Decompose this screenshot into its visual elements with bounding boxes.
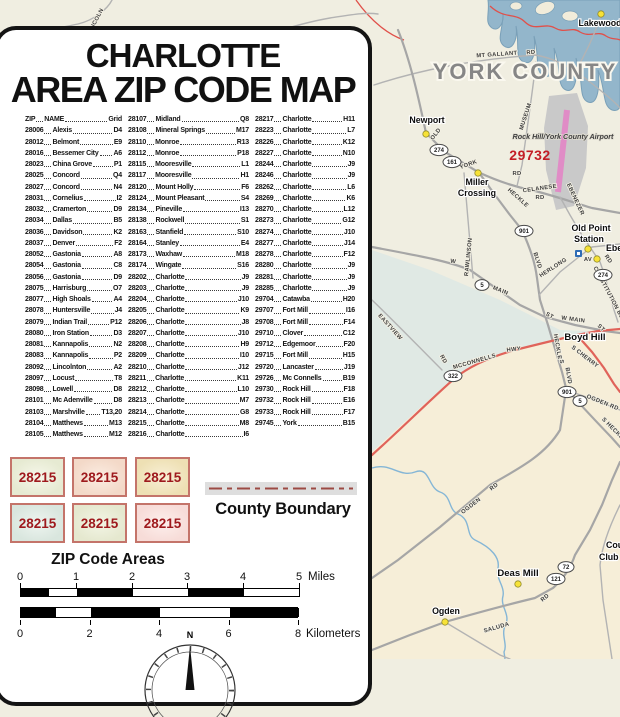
county-boundary-key-label: County Boundary <box>198 500 368 519</box>
zip-code-red-label: 29732 <box>509 147 550 163</box>
zip-row: 28211CharlotteK11 <box>128 373 249 384</box>
lake-island <box>510 2 522 10</box>
route-shield: 901 <box>515 225 533 236</box>
zip-row: 28214CharlotteG8 <box>128 407 249 418</box>
zip-row: 28206CharlotteJ8 <box>128 317 249 328</box>
scale-tick-label: 2 <box>78 628 102 640</box>
zip-row: 28207CharlotteJ10 <box>128 328 249 339</box>
scale-tick-label: 0 <box>8 628 32 640</box>
swatch-label: 28215 <box>81 470 119 485</box>
zip-row: 28115MooresvilleL1 <box>128 159 249 170</box>
zip-row: 28054GastoniaC8 <box>25 260 122 271</box>
zip-area-swatch: 28215 <box>135 457 190 497</box>
zip-row: 28052GastoniaA8 <box>25 249 122 260</box>
zip-row: 28016Bessemer CityA6 <box>25 148 122 159</box>
zip-row: 28174WingateS16 <box>128 260 249 271</box>
road-label: RD <box>512 171 521 177</box>
zip-row: 28077High ShoalsA4 <box>25 294 122 305</box>
svg-text:274: 274 <box>598 273 609 279</box>
zip-row: 28097LocustT8 <box>25 373 122 384</box>
zip-row: 28285CharlotteJ9 <box>255 283 355 294</box>
zip-row: 28108Mineral SpringsM17 <box>128 125 249 136</box>
miles-scale-bar <box>20 588 300 597</box>
zip-row: 28104MatthewsM13 <box>25 418 122 429</box>
scale-tick-label: 0 <box>8 571 32 583</box>
swatch-label: 28215 <box>19 516 57 531</box>
zip-row: 28262CharlotteL6 <box>255 182 355 193</box>
lake-island <box>562 11 578 21</box>
zip-row: 28101Mc AdenvilleD8 <box>25 395 122 406</box>
zip-row: 28078HuntersvilleJ4 <box>25 305 122 316</box>
place-label: Station <box>574 234 604 244</box>
zip-row: 29707Fort MillI16 <box>255 305 355 316</box>
zip-row: 28212CharlotteL10 <box>128 384 249 395</box>
zip-row: 29726Mc ConnellsB19 <box>255 373 355 384</box>
place-label: Club <box>599 552 619 562</box>
route-shield: 5 <box>573 396 587 407</box>
place-label: Deas Mill <box>497 568 538 579</box>
zip-row: 28215CharlotteM8 <box>128 418 249 429</box>
zip-row: 28110MonroeR13 <box>128 137 249 148</box>
map-title-line1: CHARLOTTE <box>0 39 368 72</box>
scale-tick-label: 4 <box>231 571 255 583</box>
zip-row: 28034DallasB5 <box>25 215 122 226</box>
zip-row: 28203CharlotteJ9 <box>128 283 249 294</box>
zip-row: 28270CharlotteL12 <box>255 204 355 215</box>
road-label: AV <box>584 257 592 263</box>
scale-tick-label: 3 <box>175 571 199 583</box>
zip-row: 28120Mount HollyF6 <box>128 182 249 193</box>
zip-row: 28103MarshvilleT13,20 <box>25 407 122 418</box>
route-shield: 5 <box>475 280 489 291</box>
zip-row: 28202CharlotteJ9 <box>128 272 249 283</box>
compass-needle <box>186 646 195 690</box>
zip-row: 28163StanfieldS10 <box>128 227 249 238</box>
zip-row: 28107MidlandQ8 <box>128 114 249 125</box>
zip-row: ZIPNAMEGrid <box>25 114 122 125</box>
zip-row: 28098LowellD8 <box>25 384 122 395</box>
zip-row: 28209CharlotteI10 <box>128 350 249 361</box>
map-title-line2: AREA ZIP CODE MAP <box>0 72 368 108</box>
place-dot <box>598 11 604 17</box>
place-label: Country <box>606 540 620 550</box>
road-label: RD <box>535 195 544 201</box>
svg-text:901: 901 <box>562 390 573 396</box>
zip-row: 29715Fort MillH15 <box>255 350 355 361</box>
zip-row: 29704CatawbaH20 <box>255 294 355 305</box>
zip-row: 28223CharlotteL7 <box>255 125 355 136</box>
place-label: Ogden <box>432 606 460 616</box>
zip-row: 28031CorneliusI2 <box>25 193 122 204</box>
swatch-label: 28215 <box>19 470 57 485</box>
route-shield: 901 <box>558 386 576 397</box>
zip-row: 28204CharlotteJ10 <box>128 294 249 305</box>
route-shield: 274 <box>594 269 612 280</box>
svg-text:274: 274 <box>434 148 445 154</box>
zip-row: 28205CharlotteK9 <box>128 305 249 316</box>
zip-row: 29712EdgemoorF20 <box>255 339 355 350</box>
zip-row: 28105MatthewsM12 <box>25 429 122 440</box>
zip-row: 28217CharlotteH11 <box>255 114 355 125</box>
compass-n-label: N <box>187 630 194 640</box>
zip-row: 28025ConcordQ4 <box>25 170 122 181</box>
route-shield: 322 <box>444 370 462 381</box>
route-shield: 274 <box>430 144 448 155</box>
svg-text:161: 161 <box>447 160 458 166</box>
zip-row: 28083KannapolisP2 <box>25 350 122 361</box>
county-boundary-swatch <box>205 482 357 495</box>
zip-row: 28037DenverF2 <box>25 238 122 249</box>
zip-list-column-2: 28107MidlandQ828108Mineral SpringsM17281… <box>128 114 249 440</box>
zip-row: 28273CharlotteG12 <box>255 215 355 226</box>
road-label: RD <box>526 50 535 57</box>
route-shield: 161 <box>443 156 461 167</box>
place-label: Newport <box>409 115 444 125</box>
swatch-label: 28215 <box>144 516 182 531</box>
zip-row: 29733Rock HillF17 <box>255 407 355 418</box>
zip-row: 29710CloverC12 <box>255 328 355 339</box>
poi-icon <box>575 250 582 257</box>
place-dot <box>423 131 429 137</box>
zip-area-swatch: 28215 <box>72 457 127 497</box>
zip-row: 29745YorkB15 <box>255 418 355 429</box>
route-shield: 72 <box>558 562 574 573</box>
zip-row: 28277CharlotteJ14 <box>255 238 355 249</box>
scale-tick <box>298 620 299 625</box>
zip-row: 28216CharlotteI6 <box>128 429 249 440</box>
zip-row: 28208CharlotteH9 <box>128 339 249 350</box>
route-shield: 121 <box>547 573 565 584</box>
scale-unit-label: Miles <box>308 571 335 583</box>
swatch-label: 28215 <box>81 516 119 531</box>
place-label: Ebenezer <box>606 243 620 253</box>
zip-row: 28112MonroeP18 <box>128 148 249 159</box>
zip-row: 28075HarrisburgO7 <box>25 283 122 294</box>
zip-code-list: ZIPNAMEGrid28006AlexisD428012BelmontE928… <box>25 114 355 440</box>
zip-row: 28274CharlotteJ10 <box>255 227 355 238</box>
place-label: Lakewood <box>578 18 620 28</box>
scale-tick <box>20 620 21 625</box>
km-scale-bar <box>20 607 298 618</box>
zip-row: 28227CharlotteN10 <box>255 148 355 159</box>
zip-row: 29708Fort MillF14 <box>255 317 355 328</box>
zip-row: 28079Indian TrailP12 <box>25 317 122 328</box>
zip-row: 28023China GroveP1 <box>25 159 122 170</box>
svg-text:322: 322 <box>448 374 459 380</box>
zip-row: 28269CharlotteK6 <box>255 193 355 204</box>
zip-area-swatch: 28215 <box>72 503 127 543</box>
place-dot <box>594 256 600 262</box>
place-dot <box>442 619 448 625</box>
place-dot <box>585 246 591 252</box>
place-label: Crossing <box>458 188 496 198</box>
svg-text:121: 121 <box>551 577 562 583</box>
zip-row: 28006AlexisD4 <box>25 125 122 136</box>
place-label: Boyd Hill <box>564 332 605 343</box>
zip-code-areas-label: ZIP Code Areas <box>38 551 178 569</box>
zip-list-column-1: ZIPNAMEGrid28006AlexisD428012BelmontE928… <box>25 114 122 440</box>
zip-row: 28081KannapolisN2 <box>25 339 122 350</box>
scale-tick-label: 2 <box>120 571 144 583</box>
zip-area-swatch: 28215 <box>10 503 65 543</box>
county-label: YORK COUNTY <box>433 59 618 84</box>
place-label: Miller <box>466 177 490 187</box>
zip-row: 29720LancasterJ19 <box>255 362 355 373</box>
compass-rose: N <box>128 622 252 717</box>
zip-row: 28210CharlotteJ12 <box>128 362 249 373</box>
svg-text:901: 901 <box>519 229 530 235</box>
zip-row: 28164StanleyE4 <box>128 238 249 249</box>
zip-row: 28246CharlotteJ9 <box>255 170 355 181</box>
zip-row: 28134PinevilleI13 <box>128 204 249 215</box>
place-dot <box>475 170 481 176</box>
zip-row: 28244CharlotteJ9 <box>255 159 355 170</box>
zip-row: 28012BelmontE9 <box>25 137 122 148</box>
zip-row: 28056GastoniaD9 <box>25 272 122 283</box>
zip-row: 28124Mount PleasantS4 <box>128 193 249 204</box>
zip-row: 28092LincolntonA2 <box>25 362 122 373</box>
zip-row: 28117MooresvilleH1 <box>128 170 249 181</box>
zip-row: 28226CharlotteK12 <box>255 137 355 148</box>
zip-row: 29730Rock HillF18 <box>255 384 355 395</box>
zip-row: 28027ConcordN4 <box>25 182 122 193</box>
scale-tick <box>90 620 91 625</box>
scale-unit-label: Kilometers <box>306 628 360 640</box>
zip-row: 28278CharlotteF12 <box>255 249 355 260</box>
zip-row: 28173WaxhawM18 <box>128 249 249 260</box>
zip-area-swatch: 28215 <box>135 503 190 543</box>
zip-row: 29732Rock HillE16 <box>255 395 355 406</box>
zip-area-swatch: 28215 <box>10 457 65 497</box>
zip-row: 28036DavidsonK2 <box>25 227 122 238</box>
road-label: W <box>450 259 457 266</box>
legend-panel: CHARLOTTE AREA ZIP CODE MAP ZIPNAMEGrid2… <box>0 26 372 706</box>
airport-label: Rock Hill/York County Airport <box>513 132 615 141</box>
scale-tick-label: 1 <box>64 571 88 583</box>
zip-list-column-3: 28217CharlotteH1128223CharlotteL728226Ch… <box>255 114 355 440</box>
zip-row: 28280CharlotteJ9 <box>255 260 355 271</box>
zip-row: 28138RockwellS1 <box>128 215 249 226</box>
zip-row: 28281CharlotteJ9 <box>255 272 355 283</box>
zip-row: 28080Iron StationD3 <box>25 328 122 339</box>
zip-row: 28213CharlotteM7 <box>128 395 249 406</box>
place-label: Old Point <box>571 223 610 233</box>
svg-text:72: 72 <box>563 565 570 571</box>
zip-row: 28032CramertonD9 <box>25 204 122 215</box>
place-dot <box>515 581 521 587</box>
swatch-label: 28215 <box>144 470 182 485</box>
page: { "legend": { "title_line1": "CHARLOTTE"… <box>0 0 620 659</box>
